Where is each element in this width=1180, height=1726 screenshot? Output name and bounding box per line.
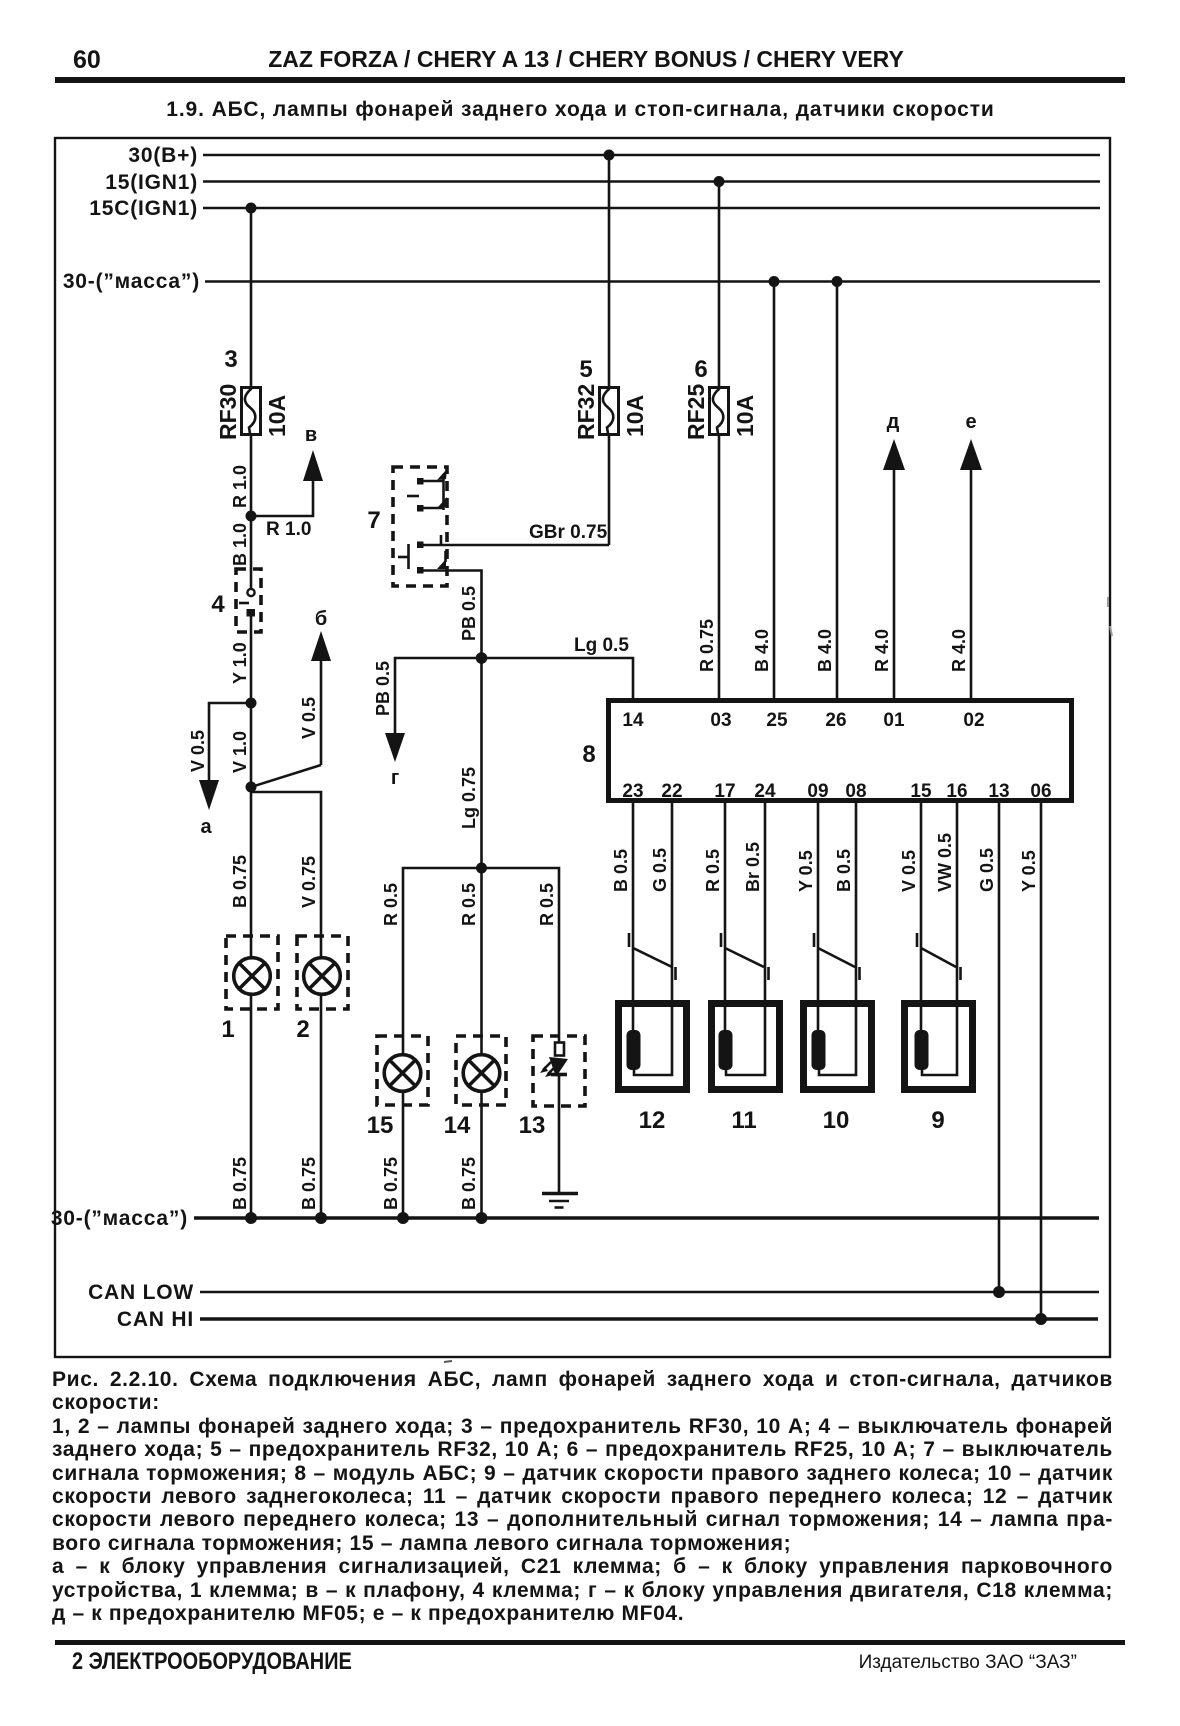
svg-text:23: 23	[622, 781, 643, 802]
svg-text:CAN HI: CAN HI	[117, 1308, 194, 1331]
svg-text:15: 15	[367, 1112, 394, 1139]
svg-text:B 4.0: B 4.0	[815, 629, 835, 672]
svg-text:26: 26	[825, 710, 846, 731]
svg-text:7: 7	[367, 507, 380, 534]
svg-text:Br 0.5: Br 0.5	[743, 842, 763, 892]
svg-text:3: 3	[224, 346, 237, 373]
svg-text:Y 1.0: Y 1.0	[230, 642, 250, 684]
svg-text:10A: 10A	[732, 395, 758, 437]
svg-text:R 1.0: R 1.0	[230, 465, 250, 508]
svg-text:Lg 0.75: Lg 0.75	[459, 767, 479, 829]
svg-text:13: 13	[519, 1112, 546, 1139]
svg-text:V 0.5: V 0.5	[899, 850, 919, 892]
svg-text:RF32: RF32	[573, 384, 599, 440]
svg-text:15: 15	[910, 781, 932, 802]
svg-text:4: 4	[211, 591, 225, 618]
svg-text:10: 10	[823, 1107, 850, 1134]
svg-text:B 0.75: B 0.75	[230, 1157, 250, 1210]
svg-text:9: 9	[931, 1107, 944, 1134]
svg-text:22: 22	[661, 781, 682, 802]
svg-text:B 1.0: B 1.0	[230, 523, 250, 566]
svg-text:в: в	[305, 424, 317, 446]
svg-text:B 0.75: B 0.75	[299, 1157, 319, 1210]
svg-text:24: 24	[754, 781, 776, 802]
svg-text:Y 0.5: Y 0.5	[1019, 850, 1039, 892]
svg-text:08: 08	[845, 781, 866, 802]
svg-text:е: е	[965, 411, 976, 433]
svg-text:30(B+): 30(B+)	[128, 144, 198, 167]
svg-text:PB 0.5: PB 0.5	[459, 586, 479, 641]
svg-text:г: г	[391, 767, 399, 789]
svg-text:25: 25	[766, 710, 788, 731]
svg-text:01: 01	[883, 710, 905, 731]
svg-text:R 0.5: R 0.5	[459, 883, 479, 926]
svg-text:а: а	[200, 816, 212, 838]
svg-text:GBr 0.75: GBr 0.75	[529, 522, 608, 543]
svg-text:V 0.75: V 0.75	[299, 856, 319, 908]
svg-text:14: 14	[444, 1112, 471, 1139]
svg-text:06: 06	[1030, 781, 1051, 802]
svg-text:03: 03	[710, 710, 731, 731]
svg-text:R 0.5: R 0.5	[537, 883, 557, 926]
svg-text:B 0.75: B 0.75	[381, 1157, 401, 1210]
svg-text:13: 13	[988, 781, 1009, 802]
svg-text:G 0.5: G 0.5	[977, 848, 997, 892]
svg-text:B 4.0: B 4.0	[752, 629, 772, 672]
svg-text:1: 1	[221, 1016, 234, 1043]
svg-text:14: 14	[622, 710, 644, 731]
svg-text:R 1.0: R 1.0	[266, 519, 311, 540]
svg-text:5: 5	[579, 356, 592, 383]
svg-text:02: 02	[963, 710, 984, 731]
svg-text:B 0.5: B 0.5	[611, 849, 631, 892]
svg-text:30-(”масса”): 30-(”масса”)	[63, 270, 200, 293]
svg-text:10A: 10A	[264, 395, 290, 437]
svg-text:R 4.0: R 4.0	[872, 629, 892, 672]
svg-text:16: 16	[946, 781, 967, 802]
svg-text:V 1.0: V 1.0	[230, 731, 250, 773]
svg-text:G 0.5: G 0.5	[650, 848, 670, 892]
svg-text:B 0.75: B 0.75	[459, 1157, 479, 1210]
svg-text:B 0.5: B 0.5	[834, 849, 854, 892]
svg-text:10A: 10A	[622, 395, 648, 437]
svg-text:Lg 0.5: Lg 0.5	[574, 635, 629, 656]
svg-text:8: 8	[582, 741, 595, 768]
svg-text:V 0.5: V 0.5	[188, 730, 208, 772]
svg-text:д: д	[887, 411, 900, 433]
svg-text:2: 2	[296, 1016, 309, 1043]
svg-text:R 0.75: R 0.75	[697, 619, 717, 672]
svg-text:PB 0.5: PB 0.5	[373, 661, 393, 716]
svg-text:R 0.5: R 0.5	[381, 883, 401, 926]
svg-text:6: 6	[694, 356, 707, 383]
svg-text:15C(IGN1): 15C(IGN1)	[89, 197, 198, 220]
svg-text:30-(”масса”): 30-(”масса”)	[51, 1207, 188, 1230]
svg-text:B 0.75: B 0.75	[230, 855, 250, 908]
svg-text:Y 0.5: Y 0.5	[796, 850, 816, 892]
svg-text:CAN LOW: CAN LOW	[88, 1281, 194, 1304]
svg-text:RF30: RF30	[215, 384, 241, 440]
svg-text:VW 0.5: VW 0.5	[935, 833, 955, 892]
svg-text:09: 09	[807, 781, 828, 802]
svg-text:12: 12	[639, 1107, 666, 1134]
svg-text:R 4.0: R 4.0	[949, 629, 969, 672]
svg-text:RF25: RF25	[683, 384, 709, 440]
svg-text:15(IGN1): 15(IGN1)	[105, 171, 198, 194]
svg-text:V 0.5: V 0.5	[299, 697, 319, 739]
svg-text:17: 17	[714, 781, 735, 802]
svg-text:б: б	[315, 608, 327, 630]
svg-text:11: 11	[731, 1107, 756, 1134]
svg-text:R 0.5: R 0.5	[703, 849, 723, 892]
